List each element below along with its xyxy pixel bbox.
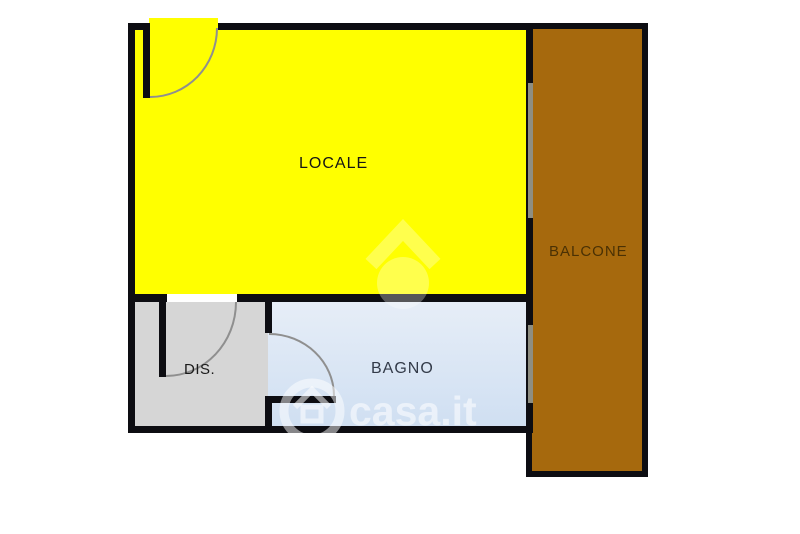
wall-bottom — [128, 426, 533, 433]
room-label-locale: LOCALE — [299, 155, 368, 173]
window-locale-balcone — [528, 83, 533, 218]
wall-dis-bagno-upper — [265, 302, 272, 333]
wall-locale-bagno-segment — [237, 294, 533, 302]
wall-top-main-segment — [218, 23, 533, 30]
wall-dis-bagno-lower — [265, 402, 272, 426]
window-bagno-balcone — [528, 325, 533, 403]
room-label-bagno: BAGNO — [371, 360, 434, 378]
room-label-balcone: BALCONE — [549, 243, 628, 260]
wall-left — [128, 23, 135, 433]
floorplan-canvas: LOCALE BALCONE DIS. BAGNO casa.it — [0, 0, 800, 534]
door-leaf-bagno — [265, 396, 336, 403]
door-leaf-locale-entrance — [143, 23, 150, 98]
room-label-dis: DIS. — [184, 361, 215, 378]
door-leaf-dis — [159, 296, 166, 377]
